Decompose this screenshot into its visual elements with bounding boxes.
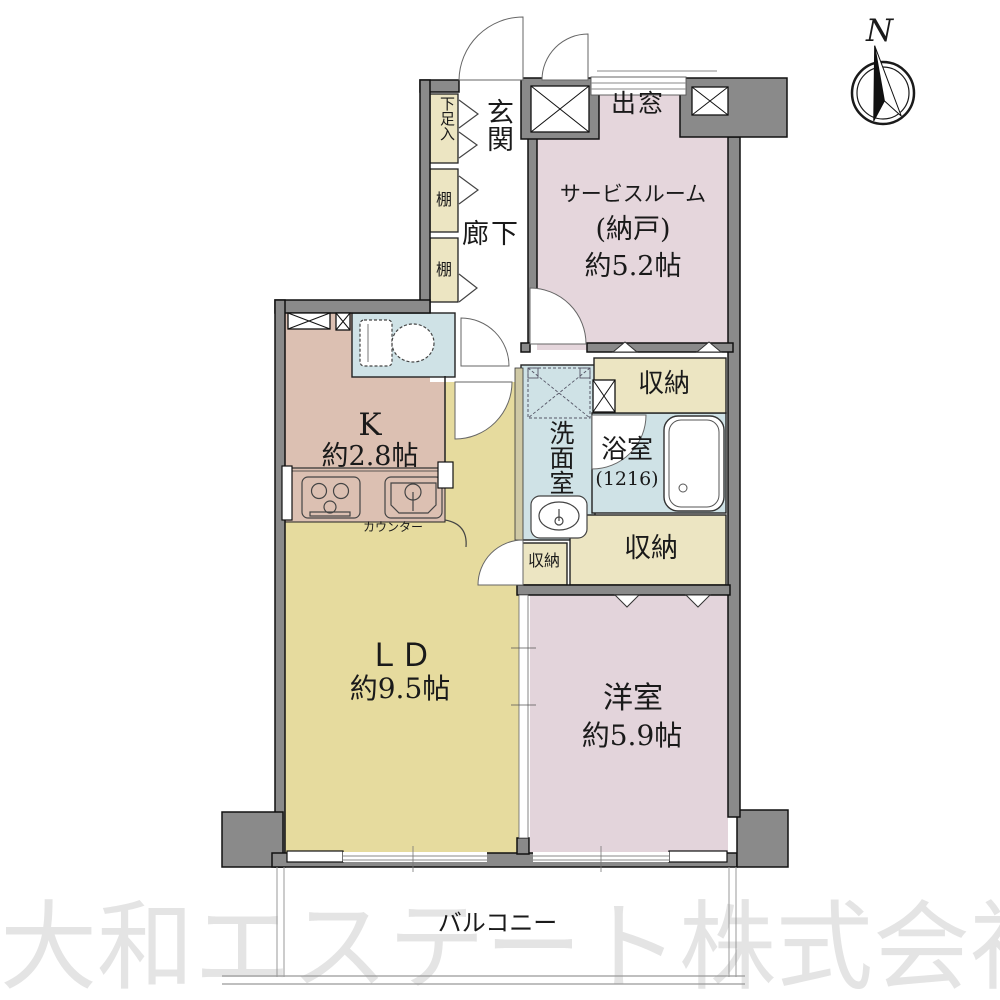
wall-kitchen-top — [275, 300, 430, 313]
label-bathroom-size: (1216) — [594, 469, 660, 490]
wall-western-top — [517, 585, 730, 595]
wall-block-bottom-right — [737, 810, 788, 867]
wall-left — [275, 300, 285, 867]
meter-box-door-swing — [542, 34, 588, 80]
wall-washroom-left — [515, 368, 523, 540]
label-storage-bottom: 収納 — [608, 534, 694, 564]
kitchen-ps-box-wide — [288, 313, 330, 329]
shaft-x-box — [531, 86, 589, 132]
label-service-room-size: 約5.2帖 — [548, 252, 718, 282]
kitchen-ps-box-narrow — [336, 313, 350, 330]
entrance-door-swing — [459, 17, 523, 80]
wall-service-bottom-a — [521, 343, 530, 352]
wall-entrance-left — [420, 80, 430, 312]
label-washroom: 洗面室 — [544, 420, 574, 505]
label-bathroom-name: 浴室 — [594, 436, 660, 465]
compass-north-label: N — [866, 14, 906, 48]
label-bay-window: 出窓 — [611, 90, 671, 118]
wall-right — [728, 137, 740, 817]
closet-ps-box — [593, 380, 615, 412]
label-entrance: 玄関 — [482, 98, 512, 158]
floor-plan-page: 大和エステート株式会社 — [0, 0, 1000, 1000]
label-shoe-cabinet: 下足入 — [433, 96, 455, 162]
label-balcony: バルコニー — [415, 910, 580, 936]
label-kitchen-name: K — [320, 408, 420, 442]
label-ld-name: ＬＤ — [350, 638, 450, 673]
label-shelf-lower: 棚 — [436, 261, 456, 279]
bathtub-fixture — [664, 416, 724, 511]
window-jamb-left — [287, 851, 343, 862]
label-storage-top: 収納 — [622, 370, 706, 399]
top-right-x-box — [692, 87, 728, 115]
window-jamb-right — [669, 851, 727, 862]
label-western-size: 約5.9帖 — [572, 721, 692, 752]
label-shelf-upper: 棚 — [436, 191, 456, 209]
label-service-room-alt: (納戸) — [548, 215, 718, 245]
label-western-name: 洋室 — [595, 682, 671, 715]
compass-icon — [852, 43, 914, 124]
label-counter: カウンター — [355, 521, 431, 534]
divider-bottom-anchor — [517, 838, 529, 854]
label-ld-size: 約9.5帖 — [335, 674, 465, 705]
label-storage-mid: 収納 — [522, 552, 566, 570]
label-kitchen-size: 約2.8帖 — [305, 442, 435, 472]
label-service-room-name: サービスルーム — [548, 183, 718, 206]
label-corridor: 廊下 — [462, 220, 524, 250]
